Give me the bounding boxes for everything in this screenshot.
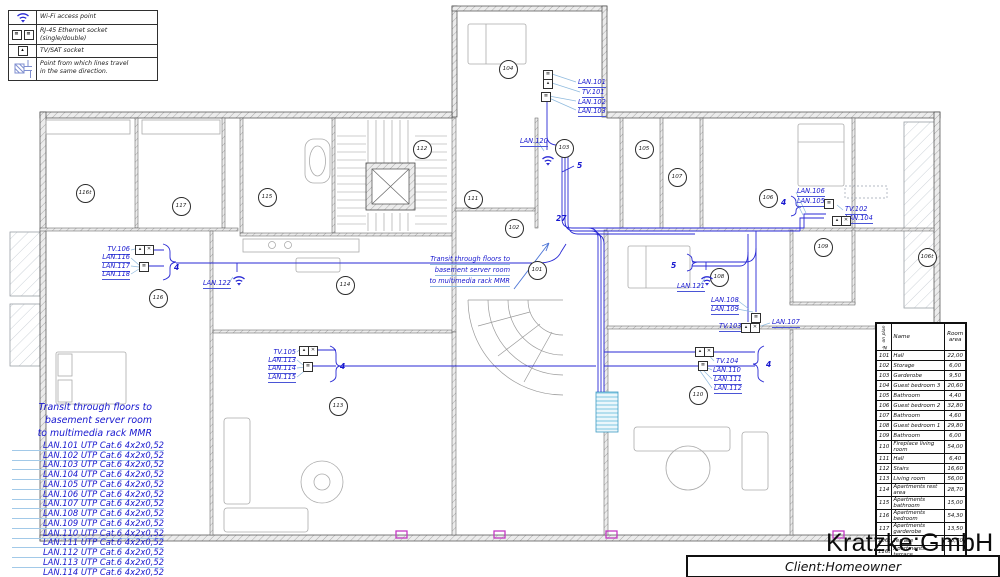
table-cell: 111 bbox=[876, 454, 892, 464]
table-cell: Apartments bathroom bbox=[892, 497, 945, 510]
wifi-icon bbox=[9, 11, 37, 24]
cable-label: LAN.118 bbox=[102, 271, 130, 280]
floorplan-canvas: Wi-Fi access point≣≣RJ-45 Ethernet socke… bbox=[0, 0, 1000, 577]
table-cell: 9,50 bbox=[945, 371, 966, 381]
transit-note-bottom: Transit through floors to basement serve… bbox=[10, 401, 152, 440]
cable-label: LAN.109 bbox=[711, 306, 739, 315]
cable-count-label: 4 bbox=[174, 264, 179, 271]
socket-icon: ▴ bbox=[543, 79, 553, 89]
table-cell: 16,60 bbox=[945, 464, 966, 474]
wifi-icon bbox=[541, 151, 555, 170]
table-cell: Hall bbox=[892, 351, 945, 361]
table-cell: 4,60 bbox=[945, 411, 966, 421]
table-cell: Garderobe bbox=[892, 371, 945, 381]
table-cell: 56,00 bbox=[945, 474, 966, 484]
direction-icon bbox=[9, 58, 37, 80]
table-row: 107Bathroom4,60 bbox=[876, 411, 966, 421]
table-cell: Storage bbox=[892, 361, 945, 371]
table-row: 101Hall22,00 bbox=[876, 351, 966, 361]
legend-label: TV/SAT socket bbox=[37, 45, 157, 57]
cable-label: LAN.115 bbox=[268, 374, 296, 383]
cable-label: LAN.103 bbox=[578, 108, 606, 117]
note-line: Transit through floors to bbox=[10, 401, 152, 414]
cable-count-label: 4 bbox=[766, 361, 771, 368]
table-header-area: Room area bbox=[945, 323, 966, 351]
room-number-badge: 102 bbox=[505, 219, 524, 238]
cable-list: LAN.101 UTP Cat.6 4x2x0,52LAN.102 UTP Ca… bbox=[12, 441, 164, 577]
socket-icon: ✕ bbox=[308, 346, 318, 356]
cable-label: LAN.101 bbox=[578, 79, 606, 88]
table-cell: Stairs bbox=[892, 464, 945, 474]
table-cell: 105 bbox=[876, 391, 892, 401]
table-row: 113Living room56,00 bbox=[876, 474, 966, 484]
table-cell: Bathroom bbox=[892, 391, 945, 401]
room-number-badge: 115 bbox=[258, 188, 277, 207]
table-header-row: № on plan Name Room area bbox=[876, 323, 966, 351]
rj45-double-icon: ≣≣ bbox=[9, 25, 37, 44]
company-watermark: Kratzke:GmbH bbox=[826, 529, 994, 558]
socket-icon: ✕ bbox=[144, 245, 154, 255]
room-number-badge: 111 bbox=[464, 190, 483, 209]
table-cell: Guest bedroom 2 bbox=[892, 401, 945, 411]
table-cell: 20,60 bbox=[945, 381, 966, 391]
table-row: 110Fireplace living room54,00 bbox=[876, 441, 966, 454]
socket-icon: ≣ bbox=[541, 92, 551, 102]
table-cell: 110 bbox=[876, 441, 892, 454]
cable-label: TV.101 bbox=[582, 89, 604, 98]
socket-icon: ≣ bbox=[698, 361, 708, 371]
table-header-plan: № on plan bbox=[882, 324, 887, 350]
cable-label: LAN.106 bbox=[797, 188, 825, 197]
room-number-badge: 106 bbox=[759, 189, 778, 208]
tv-sat-icon: ▴ bbox=[9, 45, 37, 57]
room-number-badge: 117 bbox=[172, 197, 191, 216]
cable-label: LAN.105 bbox=[797, 198, 825, 207]
room-number-badge: 116 bbox=[149, 289, 168, 308]
cable-list-item: LAN.114 UTP Cat.6 4x2x0,52 bbox=[12, 568, 164, 577]
cable-label: LAN.112 bbox=[714, 385, 742, 394]
room-number-badge: 113 bbox=[329, 397, 348, 416]
socket-icon: ✕ bbox=[704, 347, 714, 357]
table-row: 115Apartments bathroom15,00 bbox=[876, 497, 966, 510]
table-cell: Living room bbox=[892, 474, 945, 484]
table-cell: Bathroom bbox=[892, 431, 945, 441]
room-number-badge: 114 bbox=[336, 276, 355, 295]
table-row: 106Guest bedroom 232,80 bbox=[876, 401, 966, 411]
table-cell: 103 bbox=[876, 371, 892, 381]
note-line: to multimedia rack MMR bbox=[10, 427, 152, 440]
note-line: basement server room bbox=[435, 266, 510, 276]
room-number-badge: 109 bbox=[814, 238, 833, 257]
table-row: 104Guest bedroom 320,60 bbox=[876, 381, 966, 391]
table-cell: 112 bbox=[876, 464, 892, 474]
wifi-icon bbox=[232, 271, 246, 290]
table-cell: 104 bbox=[876, 381, 892, 391]
table-header-name: Name bbox=[892, 323, 945, 351]
legend-row: Point from which lines travel in the sam… bbox=[9, 57, 157, 80]
table-row: 116Apartments bedroom54,30 bbox=[876, 510, 966, 523]
room-number-badge: 110 bbox=[689, 386, 708, 405]
table-cell: Apartments bedroom bbox=[892, 510, 945, 523]
rj45-socket-glyph: ≣ bbox=[12, 30, 22, 40]
room-number-badge: 106t bbox=[918, 248, 937, 267]
table-cell: Guest bedroom 3 bbox=[892, 381, 945, 391]
table-cell: 6,40 bbox=[945, 454, 966, 464]
table-cell: 109 bbox=[876, 431, 892, 441]
room-number-badge: 116t bbox=[76, 184, 95, 203]
table-cell: Apartments rest area bbox=[892, 484, 945, 497]
table-body: 101Hall22,00102Storage6,00103Garderobe9,… bbox=[876, 351, 966, 560]
legend-label: RJ-45 Ethernet socket (single/double) bbox=[37, 25, 157, 44]
table-cell: 6,00 bbox=[945, 361, 966, 371]
room-number-badge: 103 bbox=[555, 139, 574, 158]
table-cell: 116 bbox=[876, 510, 892, 523]
socket-icon: ≣ bbox=[303, 362, 313, 372]
cable-label: LAN.107 bbox=[772, 319, 800, 328]
table-row: 109Bathroom6,00 bbox=[876, 431, 966, 441]
cable-count-label: 5 bbox=[577, 162, 582, 169]
table-cell: Hall bbox=[892, 454, 945, 464]
table-cell: 101 bbox=[876, 351, 892, 361]
legend-row: ≣≣RJ-45 Ethernet socket (single/double) bbox=[9, 24, 157, 44]
socket-icon: ✕ bbox=[750, 323, 760, 333]
table-cell: Bathroom bbox=[892, 411, 945, 421]
table-row: 112Stairs16,60 bbox=[876, 464, 966, 474]
socket-icon: ≣ bbox=[751, 313, 761, 323]
room-number-badge: 112 bbox=[413, 140, 432, 159]
room-number-badge: 101 bbox=[528, 261, 547, 280]
tv-sat-glyph: ▴ bbox=[18, 46, 28, 56]
table-cell: 114 bbox=[876, 484, 892, 497]
table-cell: 29,80 bbox=[945, 421, 966, 431]
table-cell: 15,00 bbox=[945, 497, 966, 510]
note-line: basement server room bbox=[10, 414, 152, 427]
room-number-badge: 105 bbox=[635, 140, 654, 159]
table-row: 103Garderobe9,50 bbox=[876, 371, 966, 381]
cable-label: TV.103 bbox=[719, 323, 741, 332]
table-cell: 115 bbox=[876, 497, 892, 510]
cable-count-label: 4 bbox=[781, 199, 786, 206]
table-cell: 113 bbox=[876, 474, 892, 484]
room-number-badge: 104 bbox=[499, 60, 518, 79]
table-cell: 22,00 bbox=[945, 351, 966, 361]
table-row: 114Apartments rest area28,70 bbox=[876, 484, 966, 497]
legend-label: Wi-Fi access point bbox=[37, 11, 157, 24]
client-titleblock: Client:Homeowner bbox=[686, 555, 1000, 577]
socket-icon: ✕ bbox=[841, 216, 851, 226]
table-row: 111Hall6,40 bbox=[876, 454, 966, 464]
table-cell: 107 bbox=[876, 411, 892, 421]
legend-row: ▴TV/SAT socket bbox=[9, 44, 157, 57]
table-cell: 102 bbox=[876, 361, 892, 371]
table-cell: 28,70 bbox=[945, 484, 966, 497]
rj45-socket-glyph: ≣ bbox=[24, 30, 34, 40]
socket-icon: ≣ bbox=[824, 199, 834, 209]
table-cell: 54,00 bbox=[945, 441, 966, 454]
table-cell: Guest bedroom 1 bbox=[892, 421, 945, 431]
cable-label: LAN.122 bbox=[203, 280, 231, 289]
table-row: 108Guest bedroom 129,80 bbox=[876, 421, 966, 431]
wifi-icon bbox=[700, 271, 714, 290]
note-line: Transit through floors to bbox=[430, 255, 510, 265]
table-row: 105Bathroom4,40 bbox=[876, 391, 966, 401]
note-line: to multimedia rack MMR bbox=[430, 277, 510, 287]
table-cell: 54,30 bbox=[945, 510, 966, 523]
legend-box: Wi-Fi access point≣≣RJ-45 Ethernet socke… bbox=[8, 10, 158, 81]
legend-row: Wi-Fi access point bbox=[9, 11, 157, 24]
table-cell: 4,40 bbox=[945, 391, 966, 401]
table-cell: 106 bbox=[876, 401, 892, 411]
table-cell: 32,80 bbox=[945, 401, 966, 411]
room-area-table: № on plan Name Room area 101Hall22,00102… bbox=[875, 322, 967, 560]
table-cell: 108 bbox=[876, 421, 892, 431]
transit-note-center: Transit through floors to basement serve… bbox=[402, 254, 510, 287]
room-number-badge: 107 bbox=[668, 168, 687, 187]
socket-icon: ≣ bbox=[139, 262, 149, 272]
table-row: 102Storage6,00 bbox=[876, 361, 966, 371]
table-cell: Fireplace living room bbox=[892, 441, 945, 454]
cable-label: LAN.120 bbox=[520, 138, 548, 147]
cable-count-label: 27 bbox=[556, 215, 567, 222]
cable-count-label: 4 bbox=[340, 363, 345, 370]
legend-label: Point from which lines travel in the sam… bbox=[37, 58, 157, 80]
cable-count-label: 5 bbox=[671, 262, 676, 269]
table-cell: 6,00 bbox=[945, 431, 966, 441]
